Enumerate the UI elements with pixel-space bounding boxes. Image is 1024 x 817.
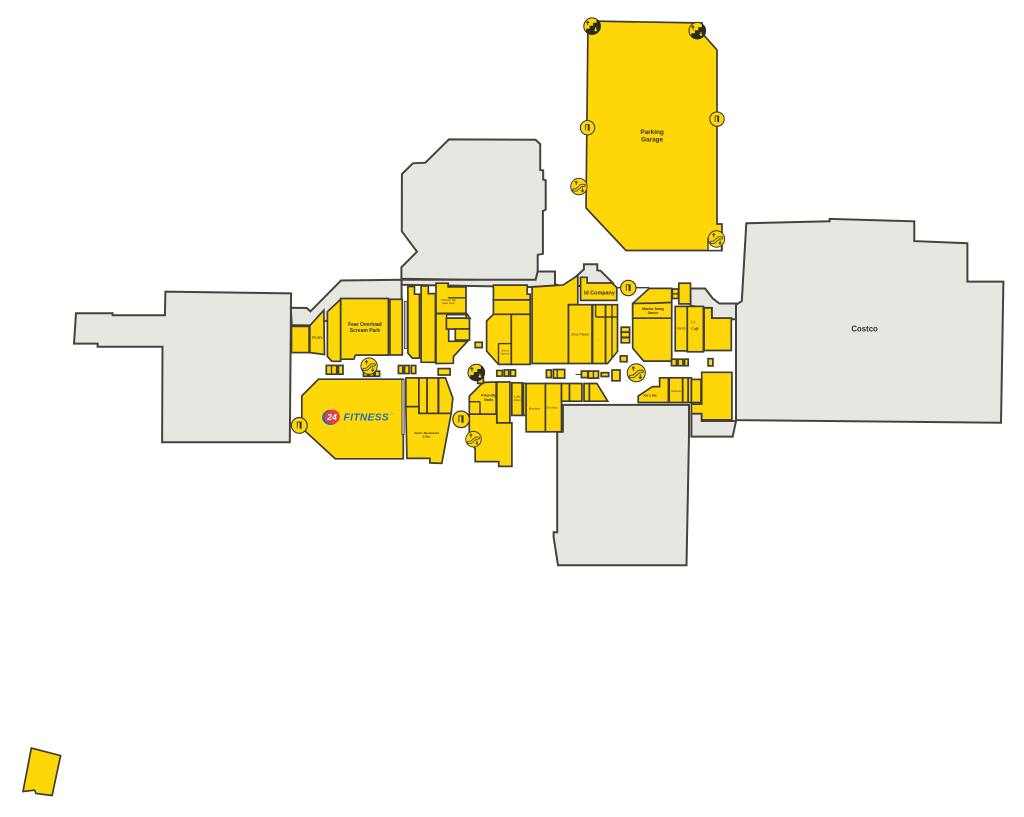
svg-text:Sweet Fr: Sweet Fr: [671, 389, 682, 393]
svg-text:Id Company: Id Company: [584, 290, 615, 296]
svg-text:Rumi: Rumi: [312, 335, 322, 340]
svg-text:Jamms: Jamms: [501, 352, 510, 356]
svg-text:. . . .: . . . .: [596, 338, 601, 341]
svg-text:Haus Soup: Haus Soup: [442, 301, 455, 305]
svg-text:24: 24: [326, 412, 337, 422]
svg-text:Boutique: Boutique: [529, 407, 540, 411]
svg-text:Dance: Dance: [648, 311, 659, 315]
svg-text:Nails: Nails: [484, 398, 493, 402]
svg-text:Glam: Glam: [514, 398, 521, 402]
svg-text:Vinoteca: Vinoteca: [546, 405, 557, 409]
svg-text:Garage: Garage: [641, 136, 663, 143]
svg-text:Hands: Hands: [677, 327, 687, 331]
svg-text:Costco: Costco: [851, 325, 878, 334]
svg-text:Shoe Palace: Shoe Palace: [571, 332, 589, 336]
svg-text:FITNESS: FITNESS: [344, 412, 389, 423]
svg-text:Ice Linx: Ice Linx: [644, 394, 657, 398]
svg-text:Scream Park: Scream Park: [350, 328, 381, 334]
svg-text:Café: Café: [691, 327, 699, 331]
svg-text:& Bar: & Bar: [423, 434, 432, 438]
svg-text:Macho Swag: Macho Swag: [642, 307, 664, 311]
svg-text:Parking: Parking: [640, 129, 664, 136]
